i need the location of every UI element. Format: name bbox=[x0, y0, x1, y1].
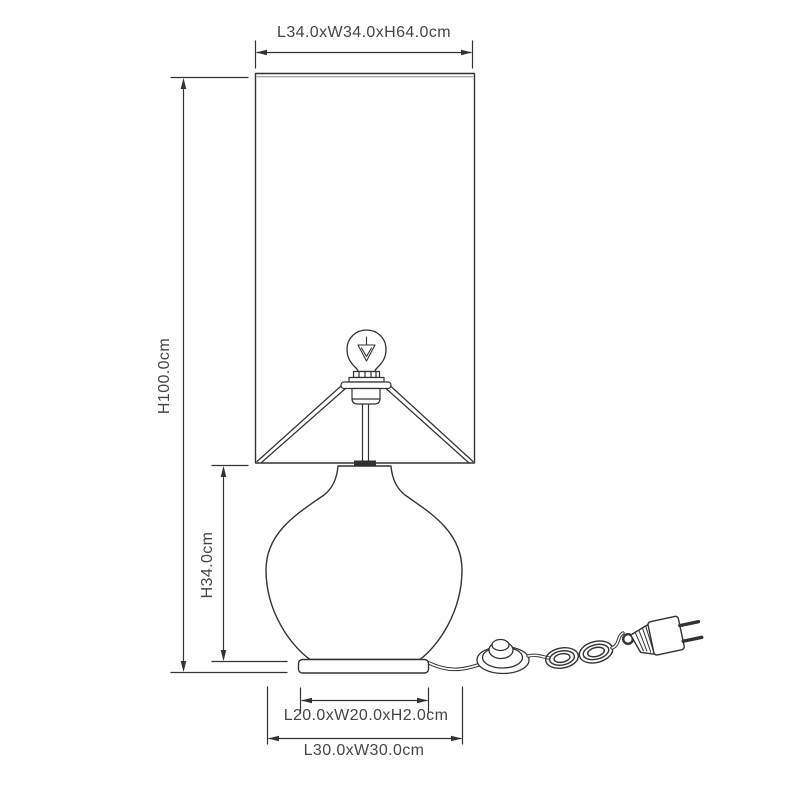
cord-coil bbox=[544, 638, 615, 671]
base-height-label: H34.0cm bbox=[199, 532, 217, 599]
arrow-right-icon bbox=[417, 698, 428, 704]
arrow-right-icon bbox=[461, 50, 472, 56]
arrow-up-icon bbox=[181, 78, 187, 89]
shade-dimensions-label: L34.0xW34.0xH64.0cm bbox=[277, 24, 451, 42]
total-height-label: H100.0cm bbox=[156, 338, 174, 414]
plug-pin-bottom bbox=[683, 637, 702, 641]
light-bulb bbox=[347, 330, 386, 372]
euro-plug bbox=[629, 612, 704, 660]
power-cord bbox=[429, 663, 484, 669]
arrow-down-icon bbox=[181, 661, 187, 672]
dim-shade bbox=[256, 41, 473, 68]
dim-total-height bbox=[171, 78, 287, 673]
arrow-left-icon bbox=[256, 50, 267, 56]
dim-base-height bbox=[212, 466, 287, 662]
base-plate bbox=[299, 660, 429, 674]
foot-switch bbox=[477, 640, 529, 674]
arrow-up-icon bbox=[221, 466, 227, 477]
plug-body bbox=[647, 616, 684, 656]
arrow-left-icon bbox=[301, 698, 312, 704]
lamp-socket bbox=[341, 372, 391, 405]
glass-base bbox=[266, 466, 462, 660]
lamp-drawing bbox=[0, 0, 800, 800]
base-plate-dimensions-label: L20.0xW20.0xH2.0cm bbox=[284, 707, 449, 725]
arrow-right-icon bbox=[451, 736, 462, 742]
power-cord-end bbox=[612, 633, 633, 648]
lamp-stem bbox=[363, 404, 369, 461]
base-footprint-label: L30.0xW30.0cm bbox=[304, 742, 425, 760]
arrow-left-icon bbox=[268, 736, 279, 742]
bulb-filament bbox=[358, 337, 375, 361]
lamp-dimension-diagram: L34.0xW34.0xH64.0cm H100.0cm H34.0cm L20… bbox=[0, 0, 800, 800]
plug-pin-top bbox=[680, 622, 699, 626]
arrow-down-icon bbox=[221, 650, 227, 661]
